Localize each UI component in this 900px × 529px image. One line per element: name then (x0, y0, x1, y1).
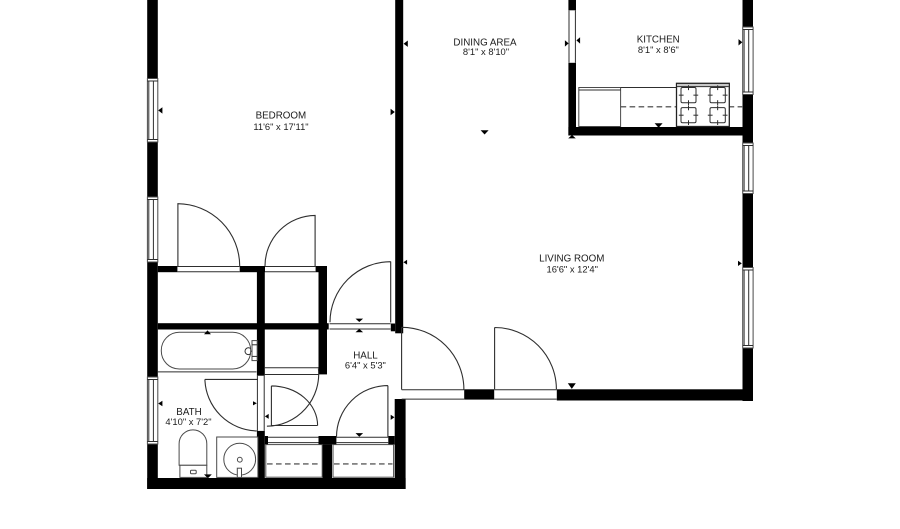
svg-text:8'1" x 8'6": 8'1" x 8'6" (638, 44, 679, 55)
svg-text:4'10" x 7'2": 4'10" x 7'2" (165, 416, 211, 427)
svg-text:6'4" x 5'3": 6'4" x 5'3" (345, 359, 386, 370)
svg-text:11'6" x 17'11": 11'6" x 17'11" (253, 121, 308, 132)
svg-text:8'1" x 8'10": 8'1" x 8'10" (463, 46, 509, 57)
svg-text:BEDROOM: BEDROOM (256, 110, 307, 121)
svg-text:16'6" x 12'4": 16'6" x 12'4" (546, 264, 597, 275)
